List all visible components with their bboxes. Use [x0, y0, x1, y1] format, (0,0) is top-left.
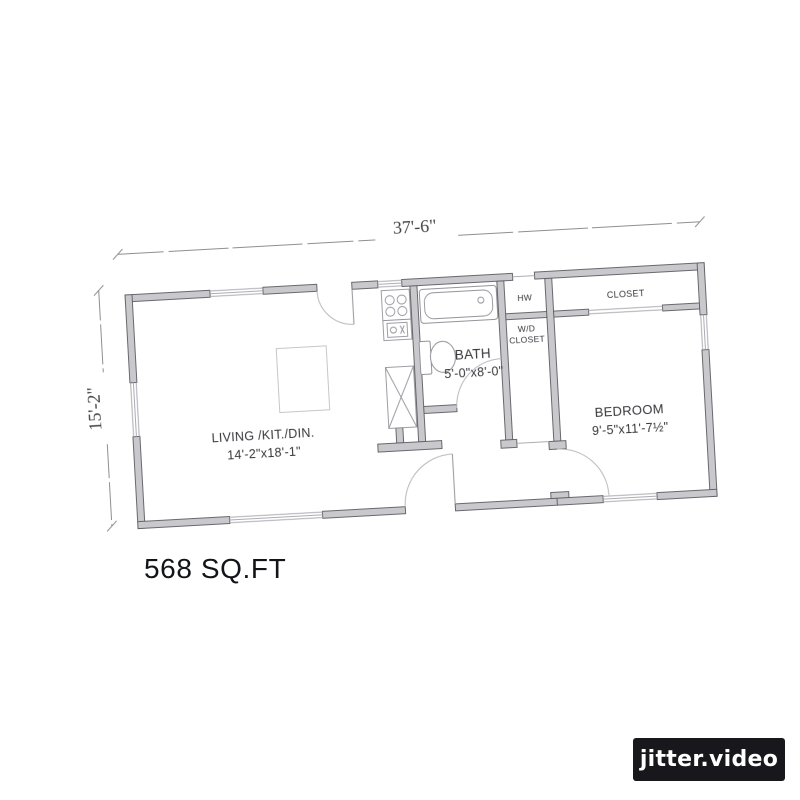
height-dimension-label: 15'-2" [83, 387, 105, 432]
bathtub [419, 285, 498, 323]
kitchen-top-window [378, 280, 402, 287]
wd-closet-label-line2: CLOSET [509, 334, 545, 346]
wd-closet-opening [517, 442, 549, 444]
bath-label: BATH [454, 346, 491, 363]
bedroom-door-arc [557, 446, 609, 498]
area-label: 568 SQ.FT [144, 553, 286, 585]
bedroom-door [557, 446, 609, 498]
entry-door-arc [317, 289, 354, 326]
bath-size: 5'-0"x8'-0" [444, 364, 504, 381]
kitchen-wall-foot [378, 441, 442, 453]
closet-wall-right-stub [662, 303, 699, 311]
kitchen-counter-stove-sink [381, 289, 412, 340]
hw-access-panel [513, 276, 535, 277]
living-table [276, 346, 329, 413]
width-dimension-label: 37'-6" [392, 216, 437, 238]
floor-plan: 37'-6" 15'-2" [61, 186, 758, 553]
page: 37'-6" 15'-2" [0, 0, 800, 800]
entry-door-leaf [352, 289, 354, 324]
rear-door [402, 454, 455, 507]
entry-door [317, 289, 354, 326]
rear-door-leaf [452, 454, 455, 504]
bedroom-left-wall [545, 278, 561, 441]
watermark-label: jitter.video [640, 747, 778, 772]
watermark-badge[interactable]: jitter.video [633, 738, 785, 781]
floor-plan-svg: 37'-6" 15'-2" [61, 186, 758, 553]
bedroom-label: BEDROOM [594, 401, 664, 420]
hw-label: HW [517, 292, 532, 303]
living-room-label: LIVING /KIT./DIN. [211, 426, 315, 446]
wd-closet-label-line1: W/D [518, 323, 536, 334]
bath-bottom-wall [424, 405, 457, 414]
living-bottom-window [230, 512, 323, 523]
bedroom-right-window [701, 315, 709, 350]
bath-right-wall [497, 281, 513, 440]
living-room-size: 14'-2"x18'-1" [227, 444, 302, 462]
closet-sliding-doors [589, 306, 663, 314]
bedroom-bottom-window [603, 493, 657, 502]
closet-label: CLOSET [607, 288, 646, 300]
living-left-window [131, 383, 140, 437]
hw-divider-wall [506, 311, 547, 319]
door-threshold-stub [551, 492, 569, 499]
closet-wall-left-stub [554, 309, 589, 317]
rear-door-arc [402, 454, 455, 507]
refrigerator [385, 366, 416, 428]
bedroom-size: 9'-5"x11'-7½" [592, 420, 669, 438]
living-top-window [210, 288, 263, 297]
